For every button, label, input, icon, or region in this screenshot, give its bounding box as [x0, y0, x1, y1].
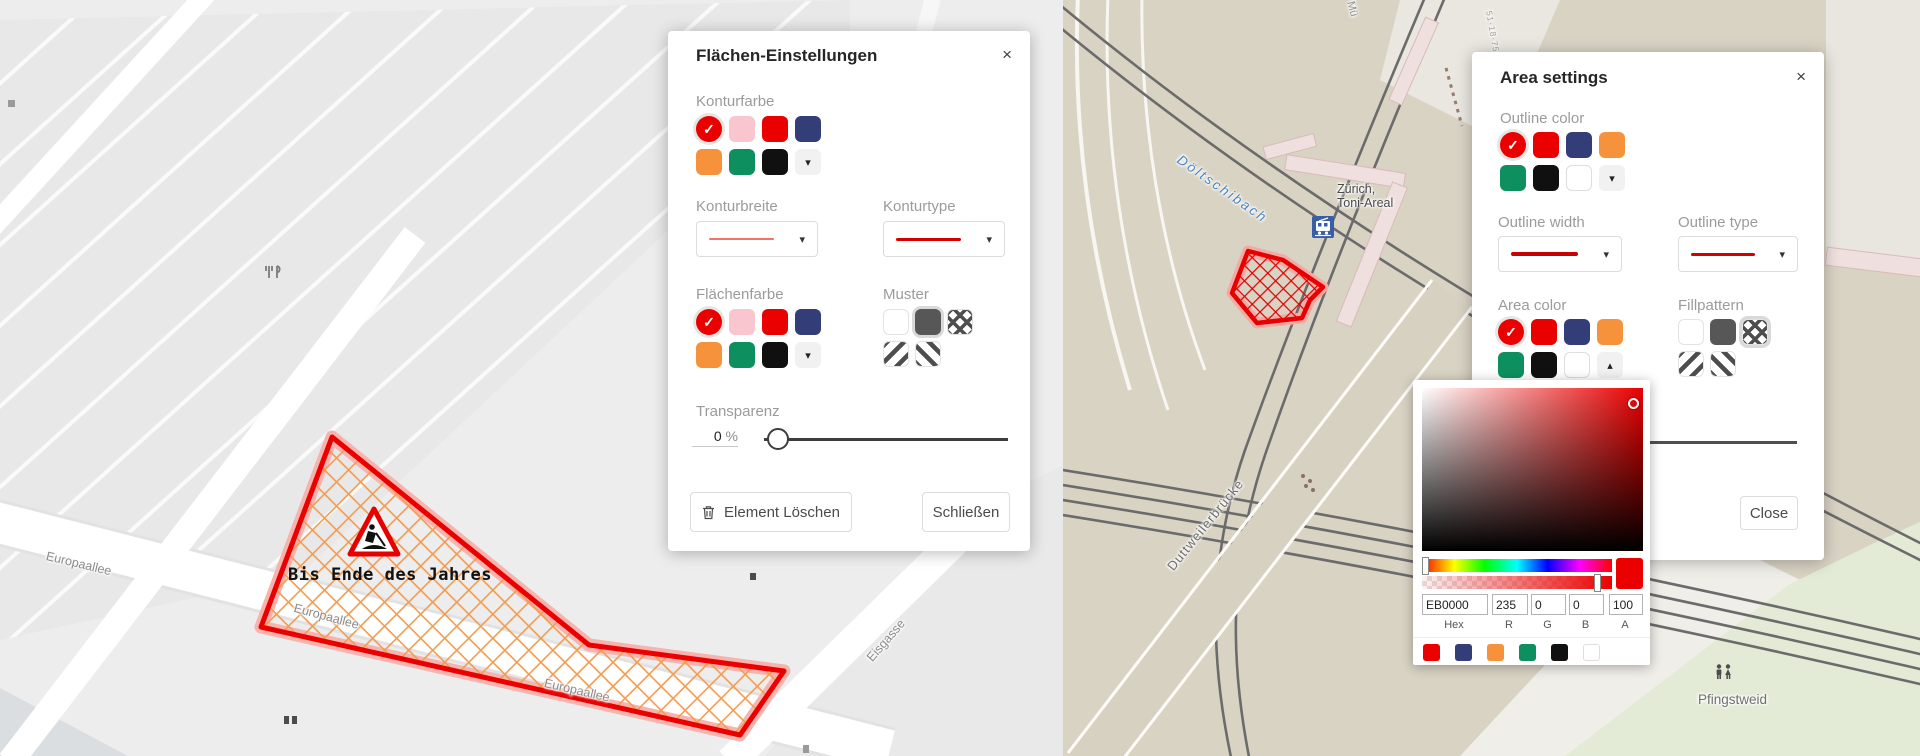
color-swatch[interactable] — [1519, 644, 1536, 661]
green-label: G — [1531, 619, 1564, 631]
green-input[interactable] — [1531, 594, 1566, 615]
color-swatch[interactable] — [1498, 352, 1524, 378]
fill-pattern-palette — [1678, 319, 1770, 377]
transparency-slider-track-partial[interactable] — [1650, 441, 1797, 444]
color-swatch[interactable] — [1583, 644, 1600, 661]
color-swatch[interactable] — [1531, 319, 1557, 345]
color-swatch[interactable] — [1533, 132, 1559, 158]
pattern-label: Muster — [883, 286, 929, 303]
area-color-label: Flächenfarbe — [696, 286, 784, 303]
color-swatch[interactable] — [1564, 352, 1590, 378]
pattern-swatch-solid[interactable] — [1710, 319, 1736, 345]
collapse-colors-swatch[interactable]: ▴ — [1597, 352, 1623, 378]
alpha-input[interactable] — [1609, 594, 1643, 615]
transparency-slider-track[interactable] — [764, 438, 1008, 441]
hue-slider-marker[interactable] — [1422, 557, 1429, 575]
outline-width-select[interactable]: ▾ — [1498, 236, 1622, 272]
station-label-line1: Zürich, — [1337, 182, 1375, 196]
blue-input[interactable] — [1569, 594, 1604, 615]
alpha-slider-marker[interactable] — [1594, 574, 1601, 592]
color-swatch[interactable] — [729, 149, 755, 175]
more-colors-swatch[interactable]: ▾ — [795, 149, 821, 175]
area-annotation-text[interactable]: Bis Ende des Jahres — [288, 565, 492, 585]
people-icon — [1714, 664, 1734, 679]
selected-type-preview — [896, 238, 961, 241]
area-color-label: Area color — [1498, 297, 1566, 314]
color-swatch[interactable] — [762, 149, 788, 175]
close-button-label: Schließen — [933, 504, 1000, 521]
color-swatch[interactable] — [729, 116, 755, 142]
pattern-swatch-cross[interactable] — [947, 309, 973, 335]
color-picker-popup: Hex R G B A — [1413, 380, 1650, 665]
color-swatch[interactable] — [696, 149, 722, 175]
selected-width-preview — [1511, 252, 1578, 256]
color-swatch[interactable] — [1533, 165, 1559, 191]
trash-icon — [702, 505, 715, 520]
color-swatch[interactable] — [1500, 165, 1526, 191]
pattern-swatch-none[interactable] — [883, 309, 909, 335]
red-label: R — [1492, 619, 1526, 631]
hex-input[interactable] — [1422, 594, 1488, 615]
outline-color-palette: ✓▾ — [1500, 132, 1630, 191]
pattern-swatch-cross[interactable] — [1742, 319, 1768, 345]
color-swatch[interactable] — [1566, 165, 1592, 191]
chevron-down-icon: ▾ — [1603, 248, 1609, 261]
delete-element-button[interactable]: Element Löschen — [690, 492, 852, 532]
color-swatch[interactable] — [762, 342, 788, 368]
check-icon: ✓ — [1507, 137, 1519, 154]
transparency-value: 0 — [714, 428, 722, 444]
outline-type-label: Konturtype — [883, 198, 956, 215]
tram-station-icon[interactable] — [1312, 216, 1334, 238]
station-label-line2: Toni-Areal — [1337, 196, 1393, 210]
chevron-down-icon: ▾ — [1779, 248, 1785, 261]
color-swatch[interactable] — [1455, 644, 1472, 661]
color-swatch[interactable] — [729, 309, 755, 335]
preset-color-palette — [1423, 644, 1643, 661]
selected-width-preview — [709, 238, 774, 240]
pattern-label: Fillpattern — [1678, 297, 1744, 314]
dialog-title: Area settings — [1500, 68, 1608, 88]
color-swatch[interactable] — [696, 342, 722, 368]
color-swatch[interactable] — [729, 342, 755, 368]
area-settings-dialog-de: Flächen-Einstellungen × Konturfarbe ✓▾ K… — [668, 31, 1030, 551]
alpha-slider[interactable] — [1422, 576, 1612, 589]
outline-width-label: Konturbreite — [696, 198, 778, 215]
chevron-down-icon: ▾ — [799, 233, 805, 246]
hex-label: Hex — [1422, 619, 1486, 631]
outline-type-select[interactable]: ▾ — [883, 221, 1005, 257]
check-icon: ✓ — [1505, 324, 1517, 341]
area-color-palette: ✓▴ — [1498, 319, 1628, 378]
close-button-label: Close — [1750, 505, 1788, 522]
close-button[interactable]: Close — [1740, 496, 1798, 530]
color-swatch[interactable] — [1423, 644, 1440, 661]
color-swatch[interactable]: ✓ — [1500, 132, 1526, 158]
more-colors-swatch[interactable]: ▾ — [795, 342, 821, 368]
divider — [1413, 637, 1650, 638]
hue-slider[interactable] — [1422, 559, 1612, 572]
transparency-slider-handle[interactable] — [767, 428, 789, 450]
pattern-swatch-d2[interactable] — [915, 341, 941, 367]
pattern-swatch-d2[interactable] — [1710, 351, 1736, 377]
selected-type-preview — [1691, 253, 1755, 256]
more-colors-swatch[interactable]: ▾ — [1599, 165, 1625, 191]
outline-color-palette: ✓▾ — [696, 116, 826, 175]
close-icon[interactable]: × — [1002, 46, 1012, 63]
pattern-swatch-solid[interactable] — [915, 309, 941, 335]
red-input[interactable] — [1492, 594, 1528, 615]
color-swatch[interactable] — [1597, 319, 1623, 345]
color-swatch[interactable] — [795, 309, 821, 335]
sv-selector-dot[interactable] — [1628, 398, 1639, 409]
transparency-value-input[interactable]: 0 % — [692, 428, 738, 447]
fill-pattern-palette — [883, 309, 975, 367]
color-swatch[interactable]: ✓ — [696, 309, 722, 335]
saturation-value-field[interactable] — [1422, 388, 1643, 551]
outline-color-label: Outline color — [1500, 110, 1584, 127]
transparency-label: Transparenz — [696, 403, 780, 420]
color-swatch[interactable] — [1599, 132, 1625, 158]
outline-type-select[interactable]: ▾ — [1678, 236, 1798, 272]
outline-width-label: Outline width — [1498, 214, 1585, 231]
pattern-swatch-d1[interactable] — [1678, 351, 1704, 377]
transparency-unit: % — [726, 428, 738, 444]
color-swatch[interactable] — [762, 116, 788, 142]
color-swatch[interactable] — [795, 116, 821, 142]
color-swatch[interactable]: ✓ — [1498, 319, 1524, 345]
check-icon: ✓ — [703, 121, 715, 138]
outline-color-label: Konturfarbe — [696, 93, 774, 110]
pattern-swatch-none[interactable] — [1678, 319, 1704, 345]
close-button[interactable]: Schließen — [922, 492, 1010, 532]
screenshot-root: Europaallee Europaallee Europaallee Eisg… — [0, 0, 1920, 756]
outline-type-label: Outline type — [1678, 214, 1758, 231]
delete-element-label: Element Löschen — [724, 504, 840, 521]
color-swatch[interactable]: ✓ — [696, 116, 722, 142]
blue-label: B — [1569, 619, 1602, 631]
alpha-label: A — [1609, 619, 1641, 631]
close-icon[interactable]: × — [1796, 68, 1806, 85]
color-swatch[interactable] — [1487, 644, 1504, 661]
color-swatch[interactable] — [1564, 319, 1590, 345]
chevron-down-icon: ▾ — [986, 233, 992, 246]
color-swatch[interactable] — [1531, 352, 1557, 378]
color-swatch[interactable] — [1566, 132, 1592, 158]
color-swatch[interactable] — [1551, 644, 1568, 661]
dialog-title: Flächen-Einstellungen — [696, 46, 877, 66]
color-preview-swatch — [1616, 558, 1643, 589]
outline-width-select[interactable]: ▾ — [696, 221, 818, 257]
area-label-pfingstweid: Pfingstweid — [1698, 692, 1767, 707]
pattern-swatch-d1[interactable] — [883, 341, 909, 367]
color-swatch[interactable] — [762, 309, 788, 335]
area-color-palette: ✓▾ — [696, 309, 826, 368]
check-icon: ✓ — [703, 314, 715, 331]
